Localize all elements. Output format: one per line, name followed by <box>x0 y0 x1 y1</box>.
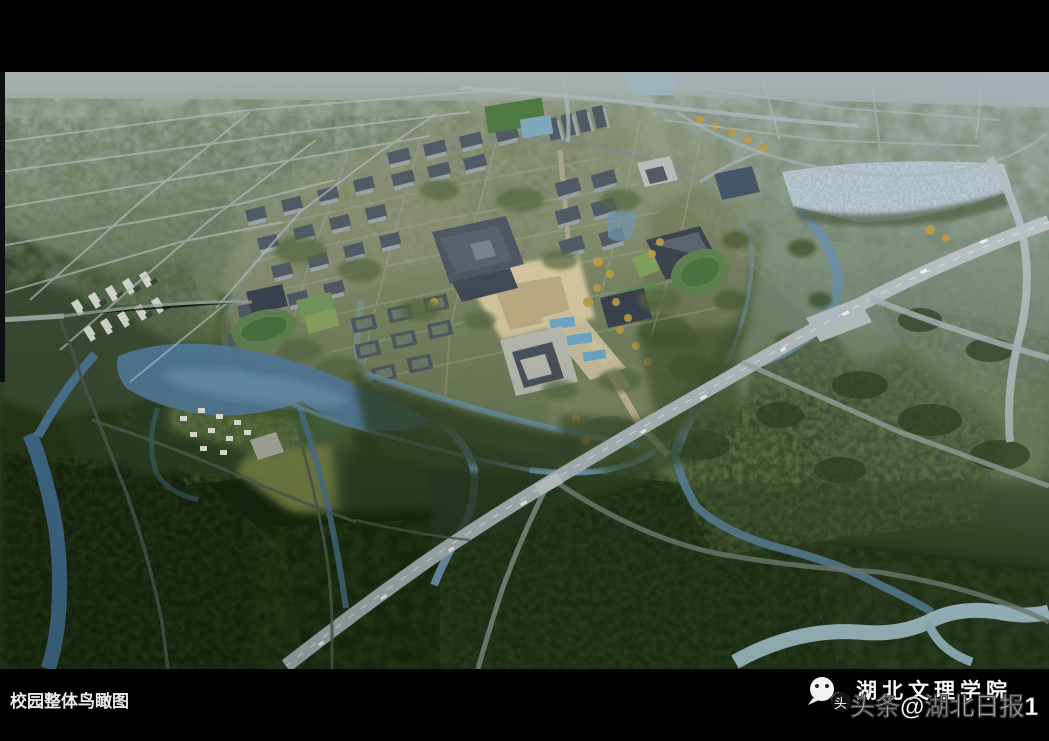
svg-text:头: 头 <box>834 696 847 711</box>
svg-text:头条@湖北日报1: 头条@湖北日报1 <box>850 693 1038 721</box>
svg-text:校园整体鸟瞰图: 校园整体鸟瞰图 <box>10 691 129 711</box>
